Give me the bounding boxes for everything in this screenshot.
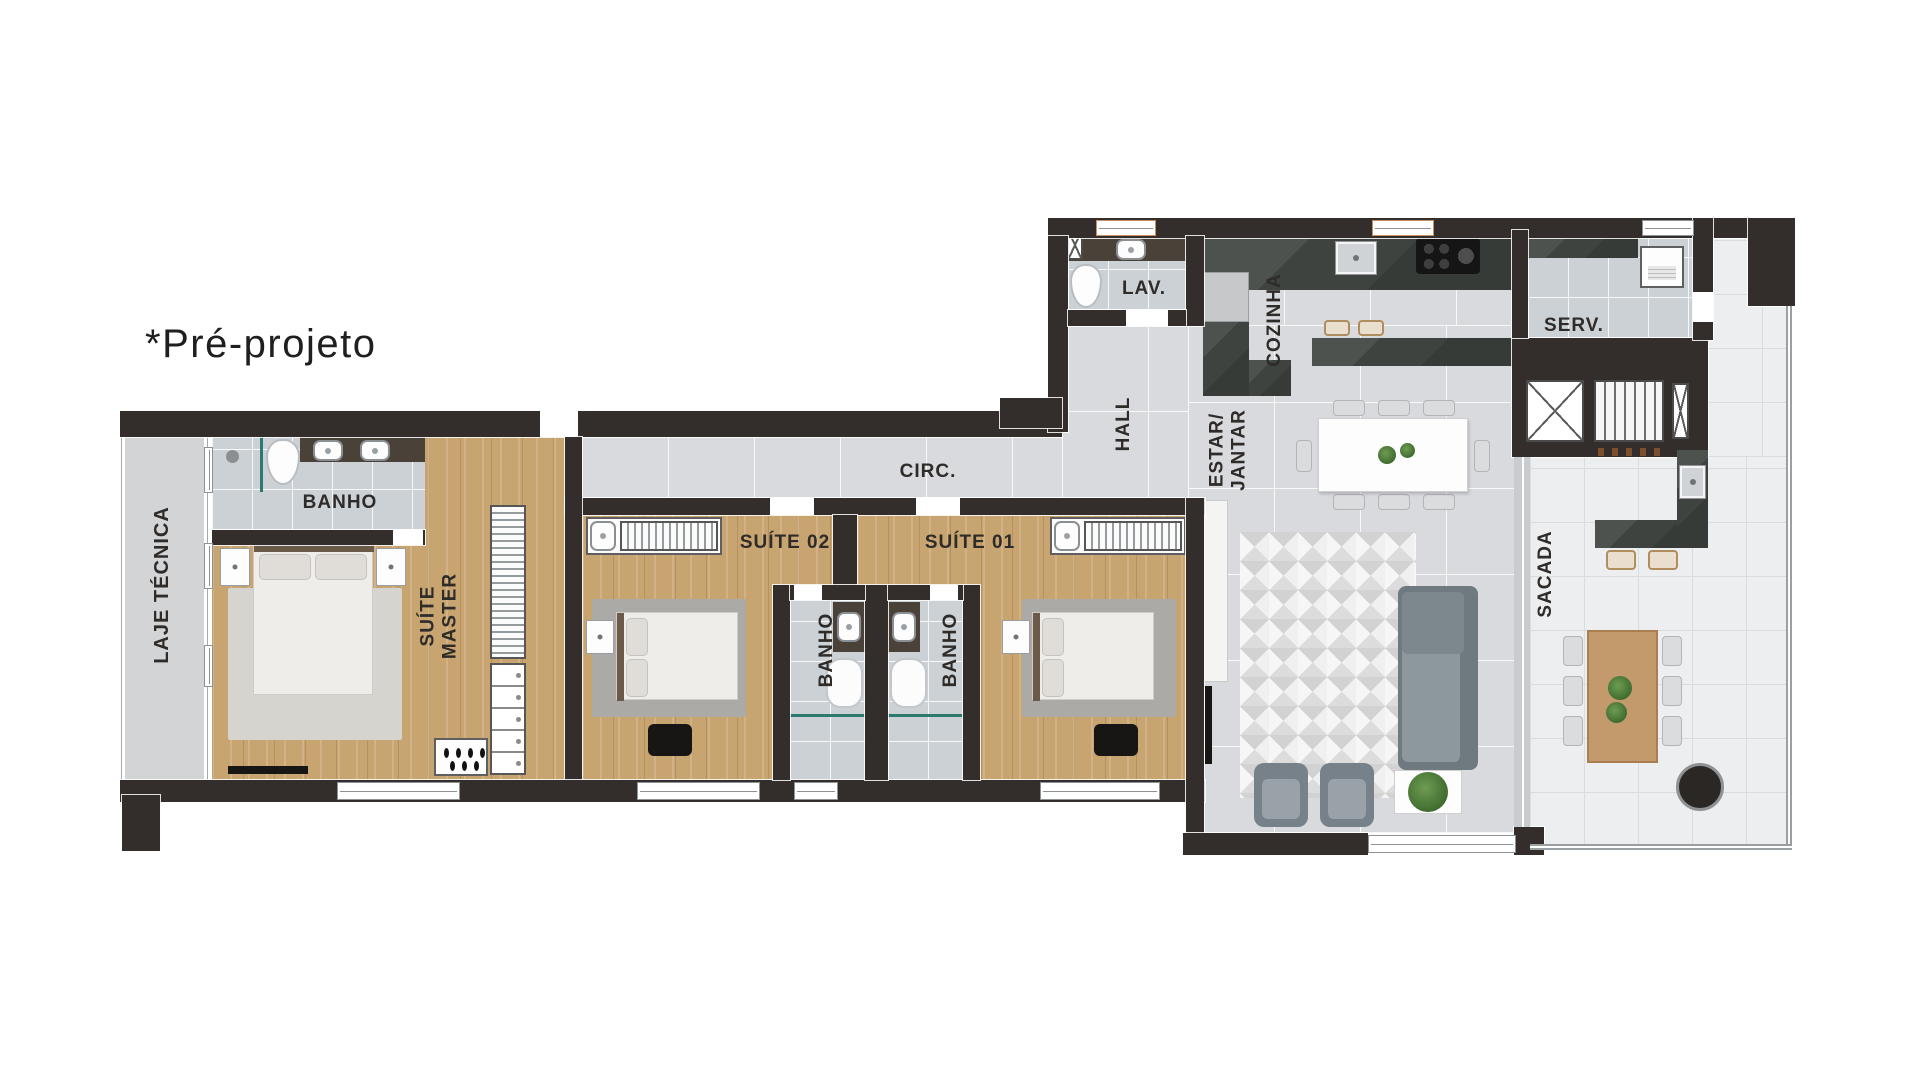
balcony-railing: [1786, 306, 1792, 850]
chair: [1474, 440, 1490, 472]
stairs-icon: [1594, 380, 1664, 442]
island-counter: [1312, 338, 1512, 366]
label-estar-jantar: ESTAR/ JANTAR: [1207, 409, 1252, 491]
window: [204, 543, 213, 589]
door-gap: [930, 585, 958, 600]
stool: [1648, 550, 1678, 570]
plant-icon: [1378, 446, 1396, 464]
label-suite-master-line2: MASTER: [440, 573, 462, 659]
door-gap: [540, 411, 578, 437]
wall: [565, 498, 1205, 515]
label-suite-02: SUÍTE 02: [740, 532, 830, 554]
tv: [648, 724, 692, 756]
floor-plan-canvas: *Pré-projeto: [0, 0, 1920, 1080]
service-counter: [1528, 236, 1638, 258]
plant-icon: [1400, 443, 1415, 458]
label-hall: HALL: [1113, 397, 1135, 452]
label-suite-01: SUÍTE 01: [925, 532, 1015, 554]
chair: [1662, 636, 1682, 666]
sink-icon: [360, 440, 390, 461]
wall: [1186, 498, 1204, 833]
sink-icon: [1116, 239, 1146, 260]
window: [204, 645, 213, 687]
wall: [1186, 236, 1204, 326]
door-gap: [770, 498, 814, 515]
sink-icon: [1054, 521, 1080, 551]
headboard: [617, 613, 624, 701]
chair: [1662, 716, 1682, 746]
chair: [1378, 400, 1410, 416]
duct-icon: [1672, 383, 1689, 439]
label-estar-line1: ESTAR/: [1207, 409, 1229, 491]
headboard: [254, 544, 374, 552]
plant-icon: [1608, 676, 1632, 700]
stair-posts: [1596, 444, 1662, 458]
label-suite-master-line1: SUÍTE: [418, 573, 440, 659]
armchair: [1320, 763, 1374, 827]
window: [1368, 835, 1516, 853]
stool: [1324, 320, 1350, 336]
pillow: [1042, 618, 1064, 656]
glass-partition: [1514, 457, 1530, 827]
fridge: [1203, 272, 1249, 322]
window: [1096, 220, 1156, 236]
label-cozinha: COZINHA: [1264, 273, 1286, 367]
pillow: [626, 618, 648, 656]
wall: [1000, 398, 1062, 428]
label-banho-master: BANHO: [303, 492, 378, 514]
wardrobe-rail: [620, 521, 718, 551]
pillow: [259, 554, 311, 580]
bed-suite-02: [616, 612, 738, 700]
wardrobe-rail: [490, 505, 526, 659]
nightstand: [1002, 620, 1030, 654]
nightstand: [376, 548, 406, 586]
stool: [1358, 320, 1384, 336]
rug-geometric: [1240, 532, 1416, 798]
chair: [1563, 676, 1583, 706]
pillow: [626, 659, 648, 697]
wall: [1514, 827, 1544, 855]
window: [1642, 220, 1694, 236]
tv: [1094, 724, 1138, 756]
window: [1040, 782, 1160, 800]
label-lavabo: LAV.: [1122, 278, 1166, 300]
wall: [1748, 218, 1795, 306]
wall: [565, 437, 582, 782]
label-circulacao: CIRC.: [900, 461, 957, 483]
wall: [1183, 833, 1368, 855]
label-estar-line2: JANTAR: [1229, 409, 1251, 491]
wall: [122, 795, 160, 851]
chair: [1333, 494, 1365, 510]
label-suite-master: SUÍTE MASTER: [418, 573, 463, 659]
headboard: [1033, 613, 1040, 701]
shower-icon: [226, 450, 239, 463]
wall: [1512, 230, 1528, 338]
wall: [963, 585, 980, 780]
wall: [120, 411, 1062, 437]
plant-icon: [1408, 772, 1448, 812]
chair: [1423, 494, 1455, 510]
sideboard: [1204, 500, 1228, 682]
window: [337, 782, 460, 800]
chair: [1563, 636, 1583, 666]
door-gap: [1126, 310, 1168, 326]
room-circulacao-floor: [582, 437, 1062, 498]
pre-projeto-note: *Pré-projeto: [145, 322, 376, 367]
elevator-icon: [1526, 380, 1584, 442]
tv-console: [228, 766, 308, 774]
shoe-rack: [434, 738, 488, 776]
laundry-sink-board: [1648, 266, 1676, 280]
chair: [1296, 440, 1312, 472]
bed-master: [253, 543, 373, 695]
window: [794, 782, 838, 800]
sink-icon: [590, 521, 616, 551]
pillow: [1042, 659, 1064, 697]
chair: [1378, 494, 1410, 510]
shower-glass: [790, 714, 865, 717]
tv: [1205, 686, 1212, 764]
pillow: [315, 554, 367, 580]
shower-glass: [888, 714, 963, 717]
shower-glass: [260, 437, 263, 492]
cooktop-icon: [1416, 238, 1480, 274]
plant-icon: [1606, 702, 1627, 723]
window: [637, 782, 760, 800]
door-gap: [794, 585, 822, 600]
fire-pit: [1676, 763, 1724, 811]
chair: [1423, 400, 1455, 416]
balcony-railing: [1530, 844, 1792, 850]
sofa: [1398, 586, 1478, 770]
label-banho-02: BANHO: [816, 613, 838, 688]
door-gap: [1693, 292, 1713, 322]
sink-icon: [837, 612, 861, 642]
nightstand: [586, 620, 614, 654]
chair: [1563, 716, 1583, 746]
window: [1372, 220, 1434, 236]
stool: [1606, 550, 1636, 570]
label-laje-tecnica: LAJE TÉCNICA: [151, 506, 175, 664]
sink-icon: [313, 440, 343, 461]
bbq-counter: [1677, 450, 1708, 548]
chair: [1333, 400, 1365, 416]
sink-icon: [1680, 466, 1705, 498]
label-servico: SERV.: [1544, 315, 1604, 337]
chair: [1662, 676, 1682, 706]
kitchen-sink-icon: [1336, 242, 1376, 274]
nightstand: [220, 548, 250, 586]
door-gap: [393, 530, 423, 545]
kitchen-cabinet: [1203, 322, 1249, 396]
wardrobe-rail: [1084, 521, 1182, 551]
door-gap: [916, 498, 960, 515]
label-banho-01: BANHO: [940, 613, 962, 688]
window: [204, 447, 213, 493]
sink-icon: [892, 612, 916, 642]
bed-suite-01: [1032, 612, 1154, 700]
label-sacada: SACADA: [1535, 530, 1557, 617]
drawer-unit: [490, 663, 526, 775]
wall: [773, 585, 790, 780]
wall: [865, 585, 888, 780]
sofa-chaise: [1402, 592, 1464, 654]
armchair: [1254, 763, 1308, 827]
bathtub-icon: [890, 658, 927, 708]
